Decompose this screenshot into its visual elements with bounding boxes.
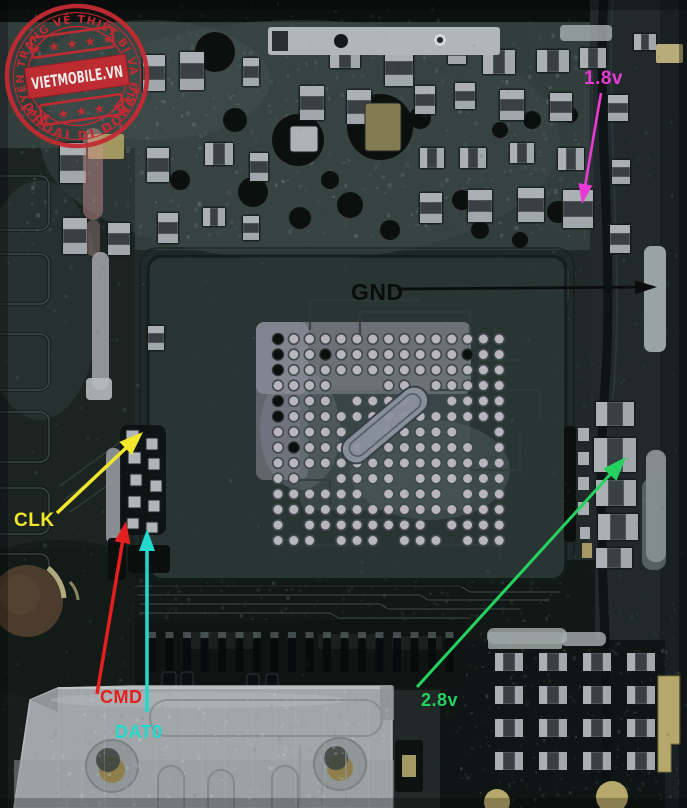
label-clk: CLK [14,510,55,531]
label-gnd: GND [351,279,404,305]
label-cmd: CMD [100,687,143,707]
label-2v8: 2.8v [421,690,458,710]
pcb-annotated-photo: CHUYÊN TRANG VỀ THIẾT BỊ VÀ ĐIỆN THOẠI D… [0,0,687,808]
label-dat0: DAT0 [115,722,163,742]
label-1v8: 1.8v [584,68,623,89]
